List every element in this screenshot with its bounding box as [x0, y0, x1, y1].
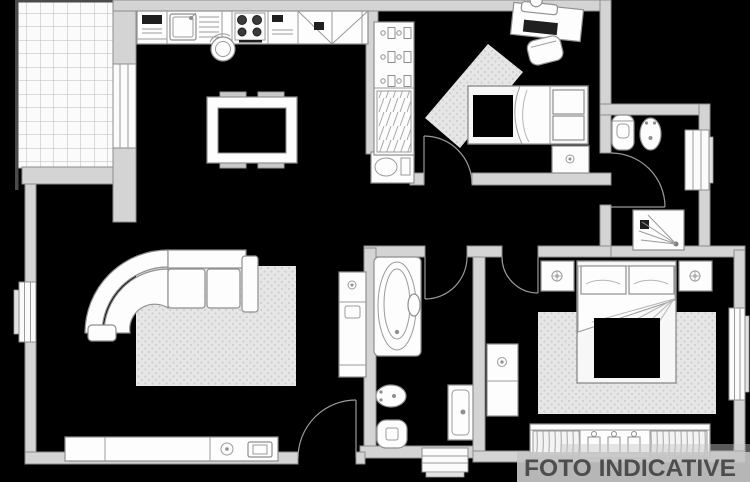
watermark-bar-fade	[560, 444, 750, 452]
balcony	[15, 0, 115, 190]
hall-console	[371, 152, 414, 183]
master-window	[729, 308, 749, 400]
nightstand-right	[679, 261, 712, 291]
kitchen-drawer	[142, 15, 162, 24]
bathtub	[374, 257, 421, 356]
balcony-railing-top	[15, 0, 115, 3]
balcony-door	[113, 64, 136, 148]
washbasin	[448, 385, 473, 440]
floor-plan-image: FOTO INDICATIVE	[0, 0, 750, 482]
single-bed	[468, 86, 588, 144]
balcony-tiles	[18, 2, 113, 168]
bath2-window	[685, 130, 713, 190]
wardrobe-shelves	[377, 91, 411, 152]
floor-plan-svg: FOTO INDICATIVE	[0, 0, 750, 482]
tv-sideboard	[65, 437, 278, 461]
tv	[248, 442, 272, 457]
pillow	[553, 90, 584, 114]
bidet-main	[376, 385, 406, 407]
wardrobe	[374, 22, 414, 155]
toilet	[612, 115, 634, 150]
shower	[633, 210, 684, 250]
double-bed	[577, 261, 676, 383]
living-cabinet	[339, 272, 366, 377]
nightstand-left	[541, 261, 574, 291]
balcony-railing	[15, 0, 19, 190]
bath-window	[422, 448, 468, 477]
hall	[371, 152, 414, 183]
living-window	[14, 282, 36, 342]
dresser	[487, 344, 518, 416]
watermark-text: FOTO INDICATIVE	[524, 455, 736, 482]
pillow	[553, 116, 584, 140]
bidet	[640, 118, 661, 150]
bedroom2-nightstand	[552, 146, 589, 173]
dining-table	[207, 92, 297, 168]
blanket	[515, 86, 550, 144]
toilet-main	[377, 420, 407, 448]
